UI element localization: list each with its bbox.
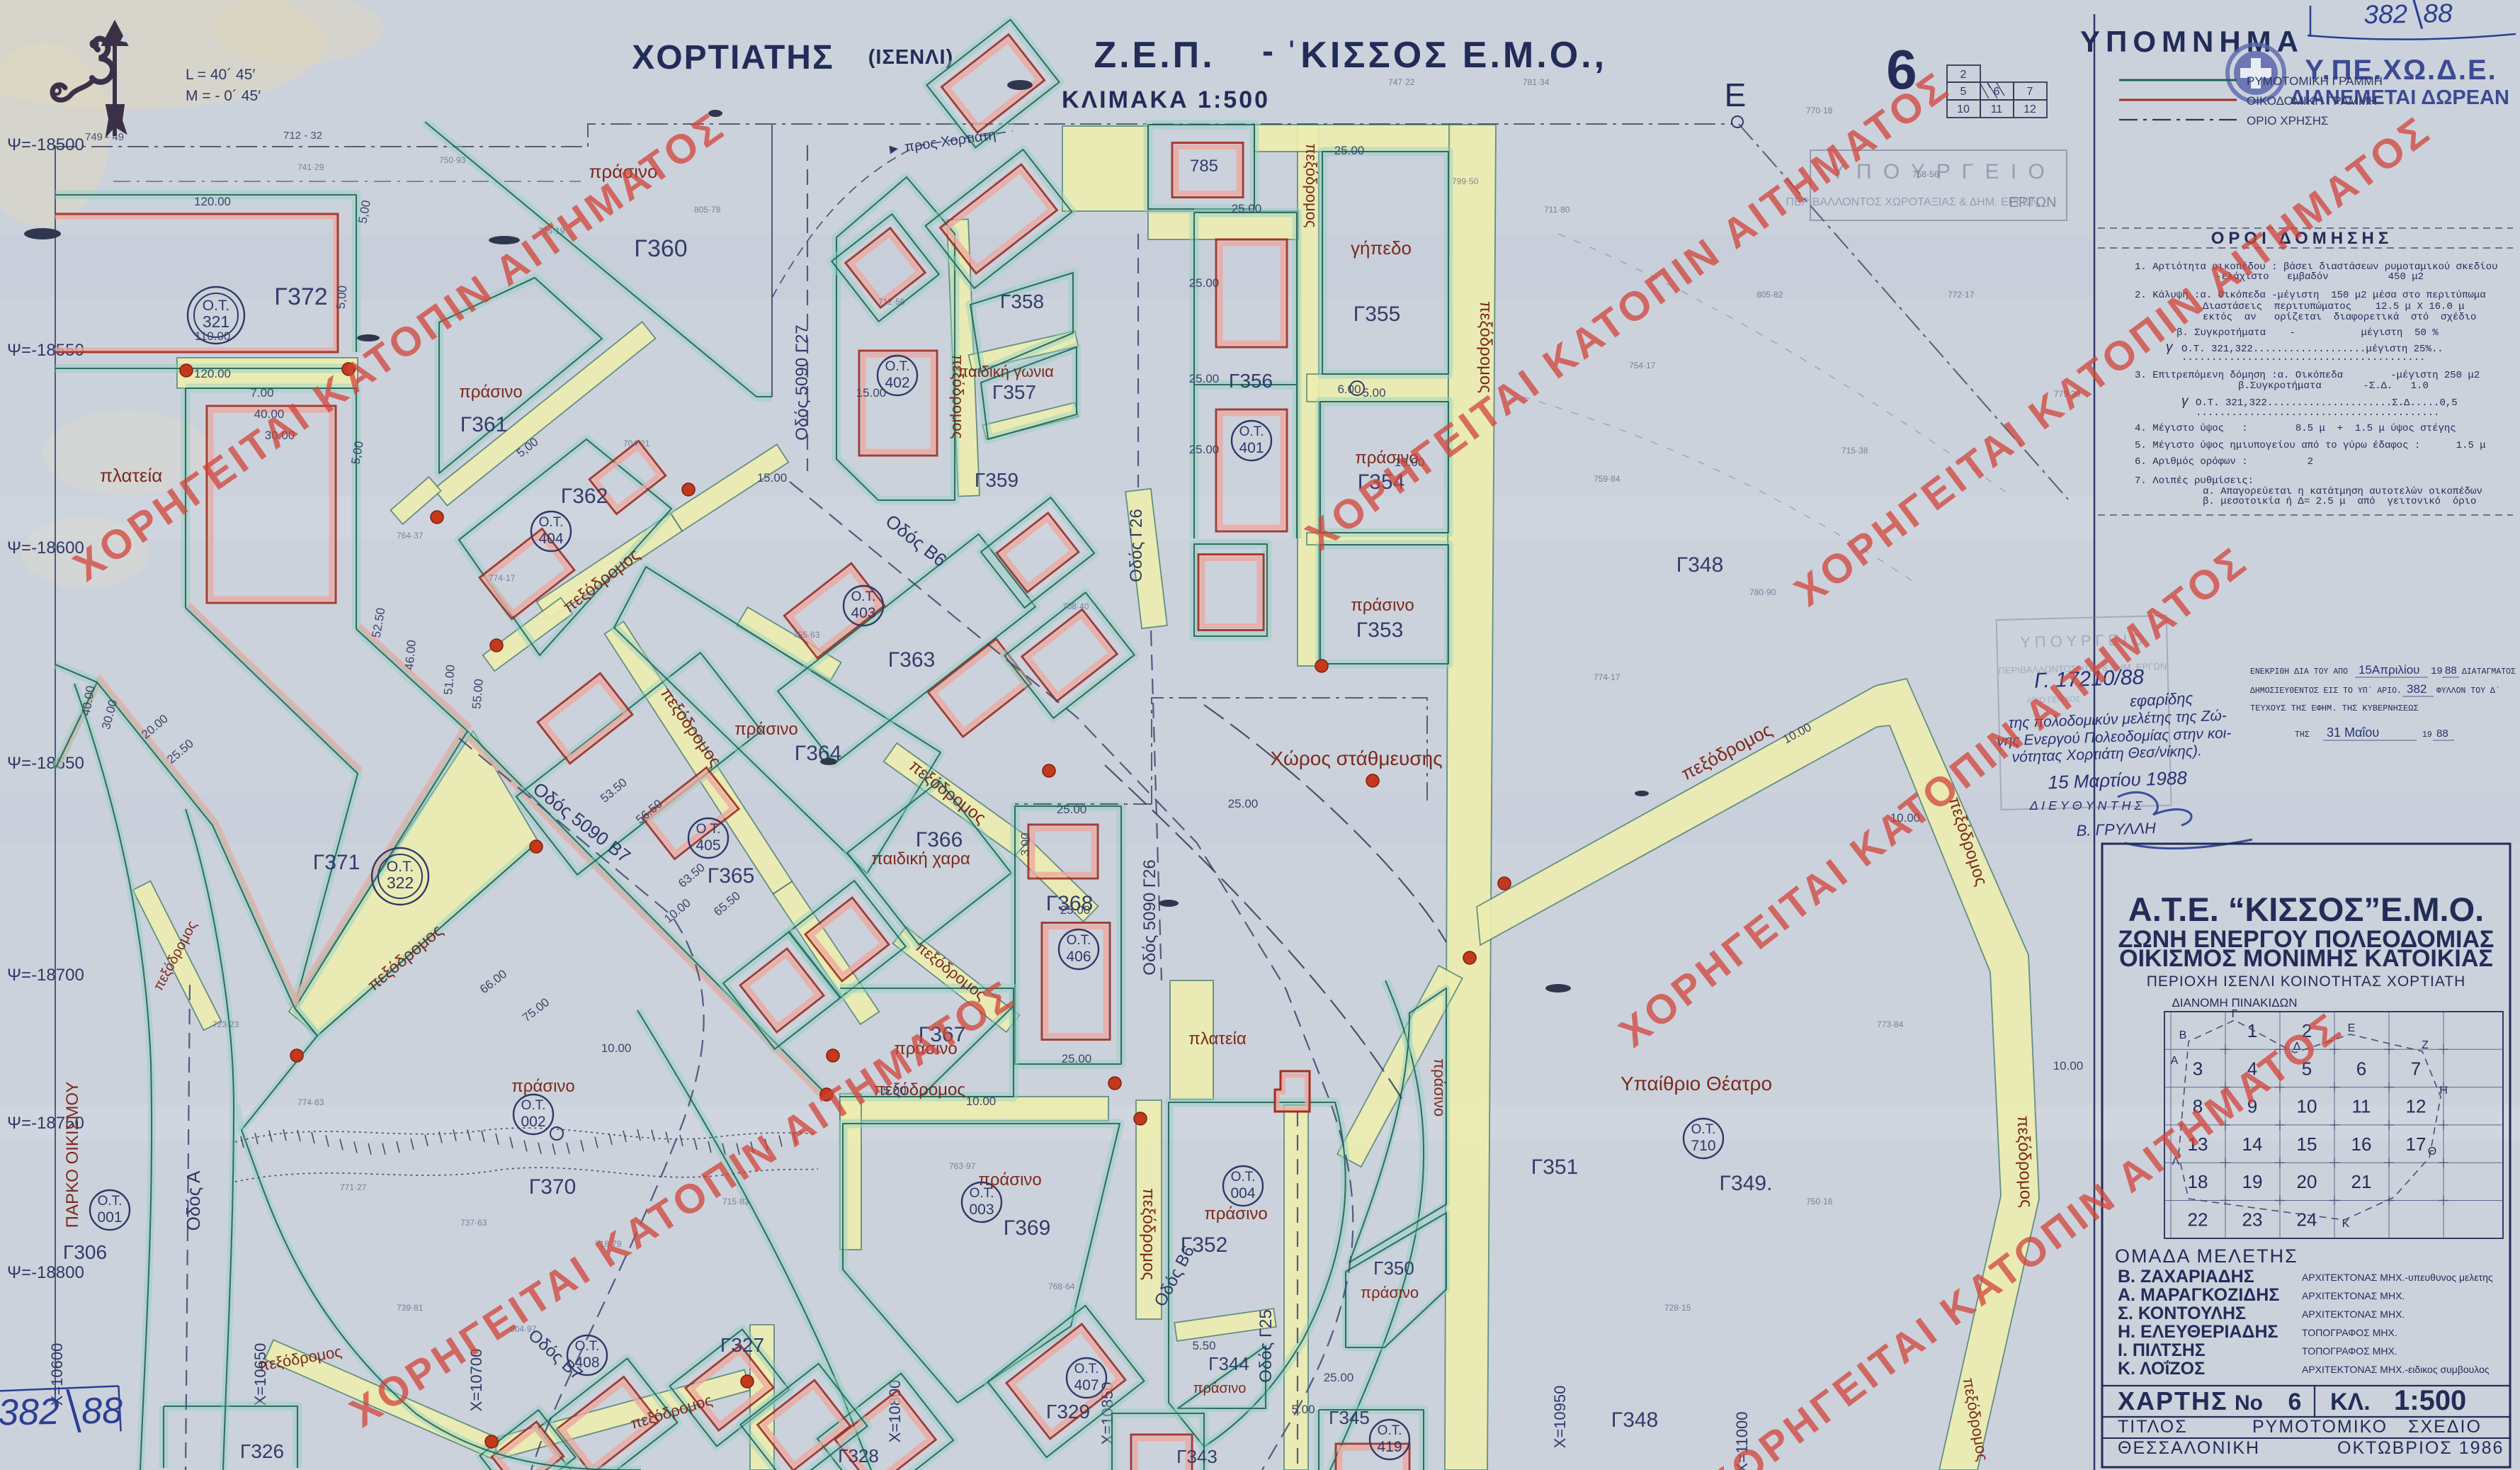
svg-text:120.00: 120.00: [194, 195, 231, 208]
svg-text:πεξόδρομος: πεξόδρομος: [2014, 1115, 2036, 1208]
svg-text:405: 405: [696, 837, 720, 854]
svg-text:Οδός 5090 Γ27: Οδός 5090 Γ27: [793, 324, 812, 441]
svg-text:6: 6: [2288, 1389, 2302, 1415]
svg-text:Ο.Τ.: Ο.Τ.: [575, 1339, 600, 1354]
svg-text:7: 7: [2411, 1058, 2421, 1079]
svg-text:10.00: 10.00: [966, 1095, 997, 1108]
svg-text:Ζ.Ε.Π.: Ζ.Ε.Π.: [1094, 35, 1215, 76]
svg-text:Γ365: Γ365: [708, 864, 755, 888]
svg-text:754·17: 754·17: [1629, 361, 1656, 371]
svg-text:755·63: 755·63: [793, 630, 820, 640]
svg-text:4. Μέγιστο ύψος : 8.5: 4. Μέγιστο ύψος : 8.5 μ + 1.5 μ ύψος στέ…: [2135, 423, 2456, 434]
svg-text:Γ361: Γ361: [460, 413, 508, 436]
svg-text:5.50: 5.50: [1192, 1339, 1215, 1352]
svg-text:763·97: 763·97: [949, 1161, 976, 1171]
svg-text:25.00: 25.00: [1057, 803, 1087, 816]
svg-text:7. Λοιπές ρυθμίσεις:: 7. Λοιπές ρυθμίσεις:: [2135, 475, 2254, 487]
svg-text:382╲88: 382╲88: [0, 1388, 123, 1434]
svg-text:ΚΛ.: ΚΛ.: [2330, 1389, 2371, 1415]
svg-text:88: 88: [2445, 665, 2457, 677]
svg-text:Ζ: Ζ: [2422, 1039, 2429, 1051]
svg-text:β. Συγκροτήματα -: β. Συγκροτήματα - μέγιστη 50 %: [2176, 327, 2439, 339]
svg-text:Η. ΕΛΕΥΘΕΡΙΑΔΗΣ: Η. ΕΛΕΥΘΕΡΙΑΔΗΣ: [2118, 1322, 2278, 1342]
svg-text:ΟΡΙΟ ΧΡΗΣΗΣ: ΟΡΙΟ ΧΡΗΣΗΣ: [2247, 114, 2328, 128]
svg-text:712·56: 712·56: [878, 297, 905, 307]
svg-text:780·90: 780·90: [1749, 587, 1776, 597]
svg-text:6: 6: [1994, 86, 2000, 98]
svg-text:20: 20: [2297, 1171, 2317, 1192]
svg-text:Οδός Γ25: Οδός Γ25: [1256, 1309, 1276, 1383]
svg-text:Ο.Τ.: Ο.Τ.: [1067, 933, 1091, 948]
svg-text:ΤΙΤΛΟΣ: ΤΙΤΛΟΣ: [2118, 1417, 2188, 1437]
svg-text:εφαρίδης: εφαρίδης: [2129, 689, 2193, 711]
svg-text:Γ326: Γ326: [240, 1440, 284, 1462]
svg-text:πράσινο: πράσινο: [734, 720, 798, 739]
svg-text:-: -: [1262, 33, 1273, 70]
svg-text:15.00: 15.00: [856, 386, 887, 400]
svg-text:15: 15: [2297, 1133, 2317, 1155]
svg-text:Γ329: Γ329: [1046, 1401, 1090, 1423]
svg-text:Γ369: Γ369: [1004, 1216, 1051, 1240]
svg-text:12: 12: [2024, 103, 2036, 115]
svg-text:ΤΟΠΟΓΡΑΦΟΣ ΜΗΧ.: ΤΟΠΟΓΡΑΦΟΣ ΜΗΧ.: [2302, 1345, 2397, 1357]
svg-text:ΑΡΧΙΤΕΚΤΟΝΑΣ ΜΗΧ.-υπευθυνος με: ΑΡΧΙΤΕΚΤΟΝΑΣ ΜΗΧ.-υπευθυνος μελετης: [2302, 1272, 2493, 1283]
svg-text:Γ: Γ: [2232, 1008, 2238, 1020]
svg-text:25.00: 25.00: [1062, 1052, 1092, 1065]
svg-text:403: 403: [851, 605, 875, 621]
svg-text:..............................: ........................................…: [2181, 352, 2425, 363]
svg-text:Γ356: Γ356: [1229, 370, 1273, 392]
svg-text:704·21: 704·21: [623, 439, 650, 448]
svg-text:ΡΥΜΟΤΟΜΙΚΟ: ΡΥΜΟΤΟΜΙΚΟ: [2252, 1417, 2388, 1437]
svg-text:L = 40´ 45′: L = 40´ 45′: [186, 67, 255, 83]
svg-text:πεξόδρομος: πεξόδρομος: [1139, 1188, 1158, 1280]
svg-text:Γ345: Γ345: [1329, 1407, 1370, 1428]
svg-text:6.00: 6.00: [1337, 383, 1361, 396]
svg-text:X=10950: X=10950: [1551, 1386, 1569, 1449]
svg-text:ΧΑΡΤΗΣ: ΧΑΡΤΗΣ: [2118, 1386, 2228, 1415]
svg-text:Α: Α: [2171, 1055, 2179, 1067]
svg-text:ΑΡΧΙΤΕΚΤΟΝΑΣ ΜΗΧ.: ΑΡΧΙΤΕΚΤΟΝΑΣ ΜΗΧ.: [2302, 1308, 2405, 1320]
svg-text:3. Επιτρεπόμενη δόμηση :α. Οικ: 3. Επιτρεπόμενη δόμηση :α. Οικόπεδα -μέγ…: [2135, 370, 2480, 381]
svg-text:πεξόδρομος: πεξόδρομος: [949, 355, 967, 439]
svg-text:Κ: Κ: [2342, 1218, 2350, 1230]
svg-text:Ο.Τ.: Ο.Τ.: [1239, 424, 1264, 439]
svg-text:Ο.Τ.: Ο.Τ.: [1074, 1362, 1099, 1376]
svg-text:ΣΧΕΔΙΟ: ΣΧΕΔΙΟ: [2408, 1417, 2482, 1437]
svg-text:ˈΚΙΣΣΟΣ Ε.Μ.Ο.,: ˈΚΙΣΣΟΣ Ε.Μ.Ο.,: [1285, 35, 1607, 76]
svg-text:404: 404: [538, 531, 563, 547]
svg-text:25.00: 25.00: [1334, 144, 1365, 157]
svg-text:Ψ=-18800: Ψ=-18800: [7, 1263, 84, 1282]
svg-text:88: 88: [2436, 728, 2448, 740]
svg-text:781·34: 781·34: [1523, 77, 1550, 87]
svg-text:25.00: 25.00: [1228, 797, 1259, 810]
svg-text:Οδός 5090 Γ26: Οδός 5090 Γ26: [1140, 859, 1159, 976]
svg-text:6. Αριθμός ορόφων : 2: 6. Αριθμός ορόφων : 2: [2135, 456, 2313, 468]
svg-text:774·83: 774·83: [297, 1097, 324, 1107]
svg-text:Οδός Γ26: Οδός Γ26: [1127, 509, 1146, 582]
svg-text:773·84: 773·84: [1877, 1019, 1904, 1029]
svg-text:πράσινο: πράσινο: [1204, 1204, 1268, 1223]
svg-text:1: 1: [2247, 1020, 2257, 1041]
svg-text:πράσινο: πράσινο: [1431, 1058, 1448, 1116]
svg-text:Ο.Τ.: Ο.Τ.: [98, 1194, 123, 1209]
svg-text:12: 12: [2406, 1096, 2427, 1117]
svg-text:Θ: Θ: [2428, 1146, 2436, 1158]
svg-text:Γ353: Γ353: [1356, 618, 1404, 642]
svg-text:πράσινο: πράσινο: [978, 1170, 1042, 1189]
svg-text:Γ348: Γ348: [1611, 1408, 1659, 1432]
svg-text:Γ358: Γ358: [1000, 290, 1044, 312]
svg-text:15Απριλίου: 15Απριλίου: [2359, 663, 2419, 677]
svg-text:πράσινο: πράσινο: [511, 1077, 575, 1096]
svg-text:5.00: 5.00: [1362, 386, 1385, 400]
svg-text:Χώρος στάθμευσης: Χώρος στάθμευσης: [1270, 747, 1442, 769]
svg-text:Ο.Τ.: Ο.Τ.: [1691, 1122, 1716, 1137]
svg-text:ΑΡΧΙΤΕΚΤΟΝΑΣ ΜΗΧ.: ΑΡΧΙΤΕΚΤΟΝΑΣ ΜΗΧ.: [2302, 1290, 2405, 1301]
svg-text:ΟΜΑΔΑ ΜΕΛΕΤΗΣ: ΟΜΑΔΑ ΜΕΛΕΤΗΣ: [2115, 1245, 2298, 1267]
svg-text:15.00: 15.00: [757, 471, 788, 485]
svg-text:741·29: 741·29: [297, 162, 324, 172]
svg-text:γ: γ: [2181, 394, 2189, 409]
svg-text:19: 19: [2431, 666, 2443, 677]
svg-text:Ο.Τ.: Ο.Τ.: [539, 515, 564, 530]
svg-text:Α. ΜΑΡΑΓΚΟΖΙΔΗΣ: Α. ΜΑΡΑΓΚΟΖΙΔΗΣ: [2118, 1285, 2279, 1305]
svg-text:710: 710: [1691, 1138, 1715, 1154]
svg-text:ΥΠΟΜΝΗΜΑ: ΥΠΟΜΝΗΜΑ: [2080, 25, 2304, 58]
svg-text:Δ Ι Ε Υ Θ Υ Ν Τ Η Σ: Δ Ι Ε Υ Θ Υ Ν Τ Η Σ: [2029, 798, 2143, 813]
svg-text:Β. ΓΡΥΛΛΗ: Β. ΓΡΥΛΛΗ: [2076, 819, 2156, 839]
svg-text:Γ362: Γ362: [561, 485, 608, 508]
svg-text:382: 382: [2407, 682, 2427, 696]
svg-text:771·27: 771·27: [340, 1182, 367, 1192]
svg-text:002: 002: [521, 1114, 545, 1130]
svg-text:747·22: 747·22: [1388, 77, 1415, 87]
svg-text:772·17: 772·17: [1948, 290, 1975, 300]
svg-text:Γ366: Γ366: [916, 828, 963, 852]
svg-text:Γ360: Γ360: [634, 235, 687, 262]
svg-text:πράσινο: πράσινο: [1361, 1284, 1419, 1301]
svg-text:ΑΡΧΙΤΕΚΤΟΝΑΣ ΜΗΧ.-ειδικος συμβ: ΑΡΧΙΤΕΚΤΟΝΑΣ ΜΗΧ.-ειδικος συμβουλος: [2302, 1364, 2490, 1375]
svg-text:5. Μέγιστο ύψος ημιυπογείου απ: 5. Μέγιστο ύψος ημιυπογείου από το γύρω …: [2135, 440, 2486, 451]
svg-text:17: 17: [2406, 1133, 2427, 1155]
svg-text:Γ349.: Γ349.: [1720, 1172, 1773, 1195]
svg-text:382╲88: 382╲88: [2363, 0, 2453, 30]
svg-text:ΤΟΠΟΓΡΑΦΟΣ ΜΗΧ.: ΤΟΠΟΓΡΑΦΟΣ ΜΗΧ.: [2302, 1327, 2397, 1338]
svg-text:749 - 49: 749 - 49: [85, 131, 124, 143]
svg-text:723·23: 723·23: [212, 1019, 239, 1029]
svg-text:Γ306: Γ306: [63, 1241, 107, 1263]
svg-text:10.00: 10.00: [2053, 1059, 2084, 1073]
svg-text:Γ363: Γ363: [888, 648, 936, 672]
svg-text:25.00: 25.00: [1189, 276, 1220, 290]
svg-text:805·82: 805·82: [1756, 290, 1783, 300]
svg-text:Γ359: Γ359: [975, 469, 1018, 491]
svg-text:401: 401: [1239, 440, 1264, 456]
svg-text:πεξόδρομος: πεξόδρομος: [1476, 301, 1495, 393]
svg-text:10: 10: [2297, 1096, 2317, 1117]
svg-text:805·78: 805·78: [694, 205, 721, 215]
svg-text:ΡΥΜΟΤΟΜΙΚΗ ΓΡΑΜΜΗ: ΡΥΜΟΤΟΜΙΚΗ ΓΡΑΜΜΗ: [2247, 74, 2383, 88]
svg-text:Οδός Α: Οδός Α: [183, 1170, 204, 1231]
svg-text:ΚΛΙΜΑΚΑ 1:500: ΚΛΙΜΑΚΑ 1:500: [1062, 86, 1270, 113]
svg-text:ΤΗΣ: ΤΗΣ: [2295, 730, 2310, 740]
svg-text:ΟΙΚΙΣΜΟΣ ΜΟΝΙΜΗΣ ΚΑΤΟΙΚΙΑΣ: ΟΙΚΙΣΜΟΣ ΜΟΝΙΜΗΣ ΚΑΤΟΙΚΙΑΣ: [2119, 945, 2493, 972]
svg-text:Ο.Τ.: Ο.Τ.: [885, 359, 910, 374]
svg-text:419: 419: [1377, 1439, 1402, 1455]
svg-text:Γ328: Γ328: [838, 1445, 879, 1466]
svg-text:Ψ=-18650: Ψ=-18650: [7, 754, 84, 773]
svg-text:708·40: 708·40: [1062, 601, 1089, 611]
svg-text:759·84: 759·84: [1594, 474, 1621, 484]
svg-text:ΔΗΜΟΣΙΕΥΘΕΝΤΟΣ ΕΙΣ ΤΟ ΥΠˈ ΑΡΙΟ: ΔΗΜΟΣΙΕΥΘΕΝΤΟΣ ΕΙΣ ΤΟ ΥΠˈ ΑΡΙΟ.: [2250, 686, 2407, 696]
svg-text:Ψ=-18500: Ψ=-18500: [7, 135, 84, 154]
svg-text:Β. ΖΑΧΑΡΙΑΔΗΣ: Β. ΖΑΧΑΡΙΑΔΗΣ: [2118, 1267, 2254, 1287]
svg-text:774·17: 774·17: [489, 573, 516, 583]
svg-text:E: E: [1725, 77, 1747, 113]
svg-text:407: 407: [1074, 1377, 1099, 1393]
svg-text:7.00: 7.00: [250, 386, 273, 400]
svg-text:55.00: 55.00: [470, 679, 486, 710]
svg-text:19: 19: [2242, 1171, 2263, 1192]
svg-text:ΧΟΡΤΙΑΤΗΣ: ΧΟΡΤΙΑΤΗΣ: [632, 39, 834, 77]
svg-text:εκτός αν ορίζεται διαφορετ: εκτός αν ορίζεται διαφορετικά στό σχέδιο: [2203, 312, 2476, 323]
svg-text:5,00: 5,00: [334, 285, 350, 310]
svg-text:770·18: 770·18: [1806, 106, 1833, 115]
svg-text:(ΙΣΕΝΛΙ): (ΙΣΕΝΛΙ): [868, 46, 953, 69]
svg-text:Ψ=-18700: Ψ=-18700: [7, 966, 84, 985]
svg-text:πράσινο: πράσινο: [1351, 596, 1414, 615]
svg-text:5.00: 5.00: [1291, 1403, 1315, 1416]
svg-text:001: 001: [97, 1209, 122, 1226]
svg-text:003: 003: [969, 1202, 994, 1218]
svg-text:711·80: 711·80: [1544, 205, 1570, 215]
svg-text:120.00: 120.00: [194, 367, 231, 380]
svg-text:3: 3: [2193, 1058, 2203, 1079]
svg-text:406: 406: [1066, 949, 1091, 965]
svg-text:ΠΑΡΚΟ ΟΙΚΙΣΜΟΥ: ΠΑΡΚΟ ΟΙΚΙΣΜΟΥ: [63, 1082, 82, 1228]
svg-text:ΠΕΡΙΟΧΗ ΙΣΕΝΛΙ ΚΟΙΝΟΤΗΤΑΣ: ΠΕΡΙΟΧΗ ΙΣΕΝΛΙ ΚΟΙΝΟΤΗΤΑΣ ΧΟΡΤΙΑΤΗ: [2147, 973, 2466, 990]
svg-text:ΔΙΑΤΑΓΜΑΤΟΣ: ΔΙΑΤΑΓΜΑΤΟΣ: [2462, 667, 2516, 677]
svg-text:Γ327: Γ327: [720, 1334, 764, 1356]
svg-text:Γ355: Γ355: [1353, 303, 1401, 326]
svg-text:712 - 32: 712 - 32: [283, 130, 322, 142]
svg-text:Ο.Τ.: Ο.Τ.: [851, 589, 876, 604]
svg-text:11: 11: [2352, 1096, 2371, 1117]
svg-text:739·81: 739·81: [397, 1303, 424, 1313]
svg-text:321: 321: [203, 312, 229, 331]
svg-text:3.00: 3.00: [1018, 832, 1032, 856]
svg-text:Ο.Τ.: Ο.Τ.: [1378, 1423, 1402, 1438]
svg-text:Κ. ΛΟΐΖΟΣ: Κ. ΛΟΐΖΟΣ: [2118, 1359, 2205, 1379]
svg-text:6: 6: [2356, 1058, 2366, 1079]
svg-text:Γ348: Γ348: [1676, 553, 1724, 577]
svg-text:Νο: Νο: [2235, 1391, 2263, 1415]
svg-text:Α.Τ.Ε. “ΚΙΣΣΟΣ”Ε.Μ.Ο.: Α.Τ.Ε. “ΚΙΣΣΟΣ”Ε.Μ.Ο.: [2128, 891, 2484, 928]
svg-text:πλατεία: πλατεία: [100, 465, 162, 486]
svg-text:πράσινο: πράσινο: [1193, 1381, 1247, 1396]
svg-text:πράσινο: πράσινο: [459, 383, 523, 402]
svg-text:β.Συγκροτήματα -Σ.Δ. 1: β.Συγκροτήματα -Σ.Δ. 1.0: [2238, 380, 2429, 392]
svg-text:10: 10: [1957, 103, 1970, 115]
svg-text:23: 23: [2242, 1209, 2263, 1231]
svg-text:21: 21: [2351, 1171, 2372, 1192]
svg-text:Ο.Τ.: Ο.Τ.: [521, 1098, 546, 1113]
svg-text:πλατεία: πλατεία: [1188, 1029, 1247, 1048]
svg-text:2: 2: [1960, 69, 1967, 81]
svg-text:19: 19: [2422, 730, 2432, 740]
svg-text:1:500: 1:500: [2394, 1385, 2466, 1416]
svg-text:004: 004: [1230, 1185, 1255, 1202]
svg-text:51.00: 51.00: [441, 665, 458, 696]
svg-text:768·64: 768·64: [1048, 1282, 1075, 1291]
svg-text:7: 7: [2027, 86, 2033, 98]
svg-text:402: 402: [885, 375, 909, 391]
svg-text:14: 14: [2242, 1133, 2263, 1155]
svg-text:Γ343: Γ343: [1176, 1446, 1218, 1467]
svg-text:Ι. ΠΙΛΤΣΗΣ: Ι. ΠΙΛΤΣΗΣ: [2118, 1340, 2206, 1360]
svg-text:25.00: 25.00: [1060, 903, 1091, 917]
svg-text:..............................: ........................................…: [2196, 407, 2439, 419]
svg-text:46.00: 46.00: [402, 640, 419, 671]
svg-text:Β: Β: [2179, 1029, 2187, 1041]
svg-text:737·63: 737·63: [460, 1218, 487, 1228]
svg-text:728·15: 728·15: [1664, 1303, 1691, 1313]
svg-text:799·50: 799·50: [1452, 176, 1479, 186]
svg-text:750·93: 750·93: [439, 155, 466, 165]
svg-text:25.00: 25.00: [1324, 1371, 1354, 1384]
svg-text:Ο.Τ.: Ο.Τ.: [696, 822, 721, 837]
svg-text:ΟΙΚΟΔΟΜΙΚΗ ΓΡΑΜΜΗ: ΟΙΚΟΔΟΜΙΚΗ ΓΡΑΜΜΗ: [2247, 94, 2377, 108]
svg-text:774·17: 774·17: [1594, 672, 1621, 682]
svg-text:715·38: 715·38: [1841, 446, 1868, 456]
svg-text:παιδική χαρα: παιδική χαρα: [871, 849, 970, 869]
svg-text:Διαστάσεις περιτυπώματος 1: Διαστάσεις περιτυπώματος 12.5 μ Χ 16.0 μ: [2203, 301, 2465, 312]
svg-text:γήπεδο: γήπεδο: [1351, 237, 1412, 259]
svg-text:πεξόδρομος: πεξόδρομος: [1302, 144, 1320, 228]
svg-text:β. μεσοτοικία ή Δ= 2.5 μ από: β. μεσοτοικία ή Δ= 2.5 μ από γειτονικό ό…: [2203, 496, 2476, 507]
svg-text:16: 16: [2351, 1133, 2372, 1155]
svg-text:25.00: 25.00: [1189, 372, 1220, 385]
svg-text:24: 24: [2297, 1209, 2317, 1231]
svg-text:Ο.Τ.: Ο.Τ.: [203, 298, 230, 314]
svg-text:785: 785: [1190, 157, 1218, 176]
svg-text:παιδική γωνια: παιδική γωνια: [958, 363, 1054, 380]
svg-text:M = - 0´ 45′: M = - 0´ 45′: [186, 88, 261, 104]
svg-text:750·16: 750·16: [1806, 1197, 1833, 1206]
svg-text:Γ370: Γ370: [529, 1175, 577, 1199]
svg-text:25.00: 25.00: [1189, 443, 1220, 456]
svg-text:11: 11: [1991, 103, 2003, 115]
svg-text:Γ372: Γ372: [274, 283, 327, 310]
svg-text:Γ371: Γ371: [313, 851, 361, 874]
svg-text:ΟΚΤΩΒΡΙΟΣ 1986: ΟΚΤΩΒΡΙΟΣ 1986: [2337, 1438, 2504, 1458]
svg-text:Σ. ΚΟΝΤΟΥΛΗΣ: Σ. ΚΟΝΤΟΥΛΗΣ: [2118, 1304, 2246, 1323]
svg-text:Γ357: Γ357: [992, 381, 1036, 403]
svg-text:ΦΥΛΛΟΝ ΤΟΥ Δˈ: ΦΥΛΛΟΝ ΤΟΥ Δˈ: [2436, 686, 2500, 696]
svg-text:ΕΡΓΩΝ: ΕΡΓΩΝ: [2009, 195, 2056, 210]
svg-text:ΤΕΥΧΟΥΣ ΤΗΣ ΕΦΗΜ. ΤΗΣ ΚΥΒΕΡΝΗΣ: ΤΕΥΧΟΥΣ ΤΗΣ ΕΦΗΜ. ΤΗΣ ΚΥΒΕΡΝΗΣΕΩΣ: [2250, 703, 2419, 713]
svg-text:Ο.Τ.: Ο.Τ.: [1231, 1170, 1256, 1185]
svg-text:22: 22: [2188, 1209, 2208, 1231]
svg-text:ΘΕΣΣΑΛΟΝΙΚΗ: ΘΕΣΣΑΛΟΝΙΚΗ: [2118, 1438, 2260, 1458]
svg-text:ΠΕΡΙΒΑΛΛΟΝΤΟΣ ΧΩΡΟΤΑΞΙΑΣ & ΔΗΜ: ΠΕΡΙΒΑΛΛΟΝΤΟΣ ΧΩΡΟΤΑΞΙΑΣ & ΔΗΜ. ΕΡΓΩΝ: [1786, 196, 2038, 208]
svg-text:ΕΝΕΚΡΙΘΗ ΔΙΑ ΤΟΥ ΑΠΟ: ΕΝΕΚΡΙΘΗ ΔΙΑ ΤΟΥ ΑΠΟ: [2250, 667, 2353, 677]
svg-text:Υπαίθριο Θέατρο: Υπαίθριο Θέατρο: [1621, 1073, 1772, 1095]
svg-text:322: 322: [387, 873, 414, 892]
svg-text:Ο.Τ.: Ο.Τ.: [387, 859, 414, 875]
svg-text:Γ344: Γ344: [1208, 1353, 1249, 1374]
svg-text:18: 18: [2188, 1171, 2208, 1192]
svg-text:Ε: Ε: [2348, 1022, 2356, 1034]
svg-text:764·37: 764·37: [397, 531, 424, 541]
svg-text:X=10800: X=10800: [886, 1380, 904, 1443]
svg-text:31 Μαΐου: 31 Μαΐου: [2327, 725, 2379, 740]
svg-text:5: 5: [1960, 86, 1967, 98]
svg-text:110.00: 110.00: [195, 329, 231, 343]
svg-text:10.00: 10.00: [601, 1041, 632, 1055]
svg-text:Γ351: Γ351: [1531, 1155, 1579, 1179]
svg-text:25.00: 25.00: [1232, 202, 1262, 215]
svg-text:Γ350: Γ350: [1373, 1257, 1414, 1279]
